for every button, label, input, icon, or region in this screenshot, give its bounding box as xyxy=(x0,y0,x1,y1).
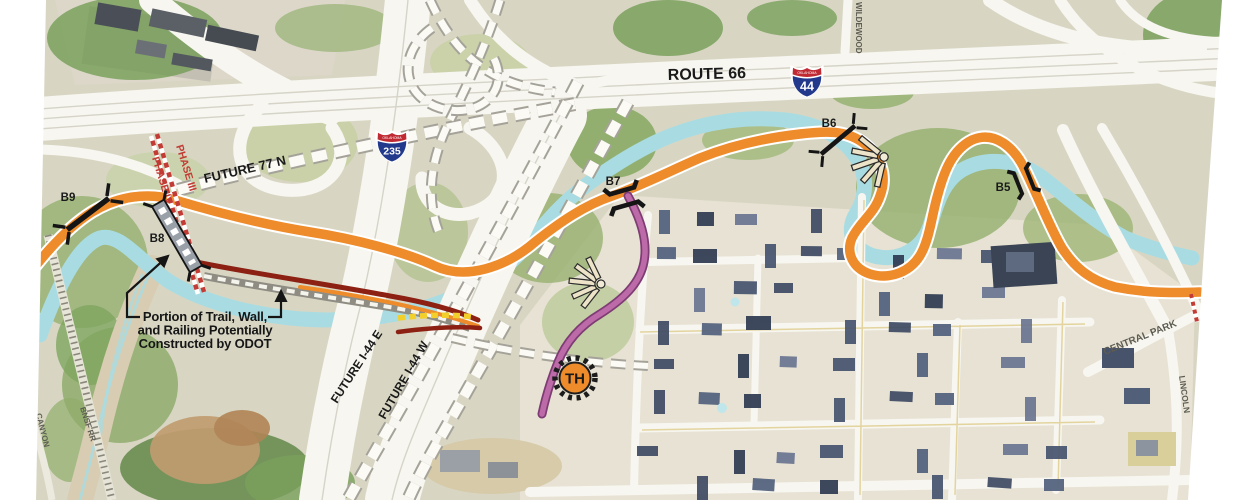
i44-shield-number: 44 xyxy=(800,80,814,94)
annotation-line-3: Constructed by ODOT xyxy=(139,336,272,351)
i235-shield-state: OKLAHOMA xyxy=(382,136,402,140)
route66-label: ROUTE 66 xyxy=(668,65,747,84)
i235-shield-number: 235 xyxy=(383,146,401,158)
bridge-b7-label: B7 xyxy=(606,176,621,188)
map-canvas: PHASE III PHASE IV TH B9 B8 B7 B6 B5 ROU… xyxy=(0,0,1235,500)
i44-shield-state: OKLAHOMA xyxy=(797,71,817,75)
bridge-b8-label: B8 xyxy=(150,233,165,245)
trail-plan-map: PHASE III PHASE IV TH B9 B8 B7 B6 B5 ROU… xyxy=(0,0,1235,500)
bridge-b5-label: B5 xyxy=(996,182,1011,194)
trailhead-label: TH xyxy=(565,371,585,388)
bridge-b9-label: B9 xyxy=(61,192,76,204)
wildewood-label: WILDEWOOD xyxy=(854,2,863,54)
bridge-b6-label: B6 xyxy=(822,118,837,130)
